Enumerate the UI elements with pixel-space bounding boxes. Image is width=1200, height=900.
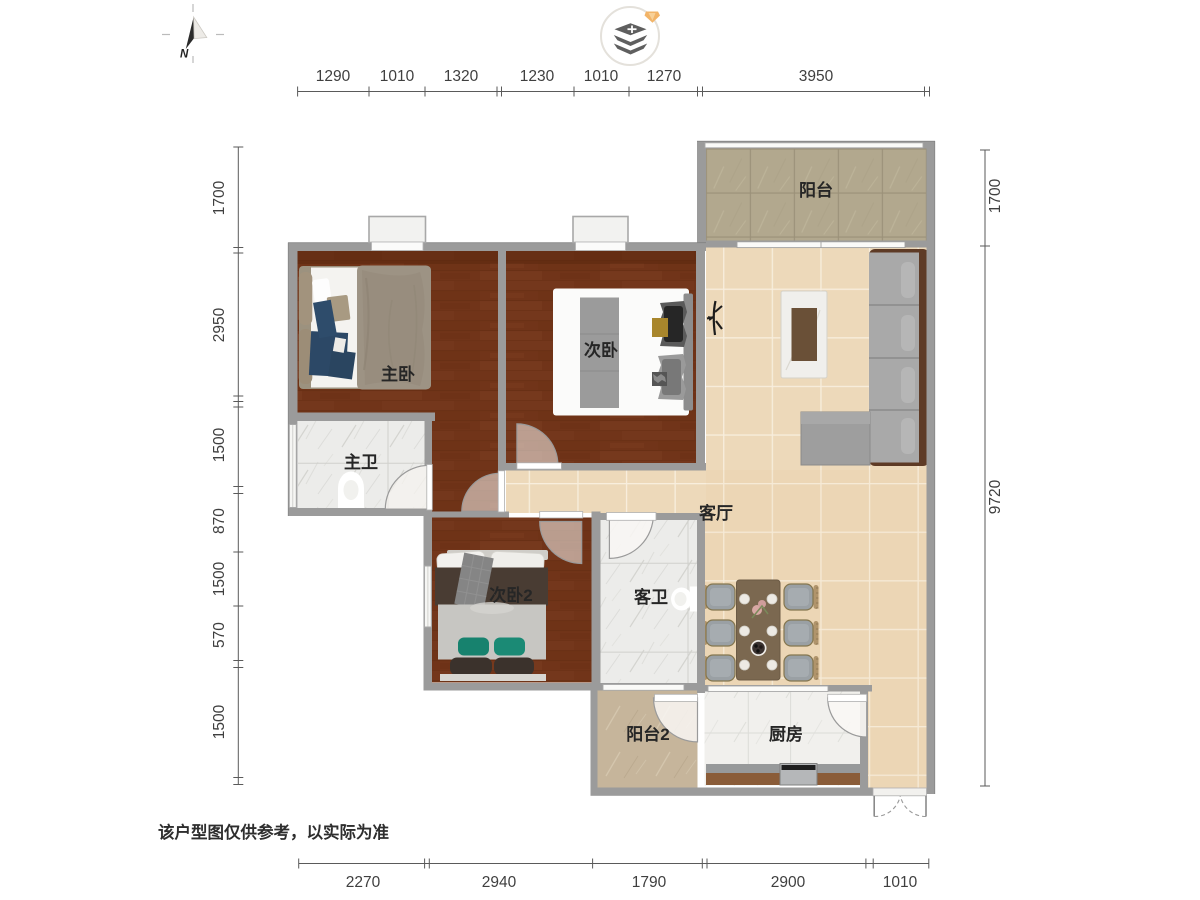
svg-text:1270: 1270 (647, 68, 682, 85)
svg-text:570: 570 (211, 622, 228, 648)
svg-text:1700: 1700 (987, 178, 1004, 213)
svg-text:1320: 1320 (444, 68, 479, 85)
svg-text:次卧: 次卧 (584, 340, 618, 360)
svg-text:阳台2: 阳台2 (626, 724, 669, 744)
svg-text:1010: 1010 (584, 68, 619, 85)
svg-text:9720: 9720 (987, 479, 1004, 514)
svg-text:1010: 1010 (380, 68, 415, 85)
svg-text:3950: 3950 (799, 68, 834, 85)
svg-text:1500: 1500 (211, 427, 228, 462)
svg-text:主卧: 主卧 (381, 364, 415, 384)
svg-text:阳台: 阳台 (799, 180, 833, 200)
svg-text:1010: 1010 (883, 874, 918, 891)
svg-text:2270: 2270 (346, 874, 381, 891)
svg-text:1790: 1790 (632, 874, 667, 891)
svg-text:次卧2: 次卧2 (489, 585, 532, 605)
svg-text:主卫: 主卫 (344, 452, 378, 472)
svg-text:2940: 2940 (482, 874, 517, 891)
svg-text:1290: 1290 (316, 68, 351, 85)
svg-text:N: N (180, 49, 189, 61)
svg-text:1700: 1700 (211, 180, 228, 215)
svg-text:客厅: 客厅 (698, 503, 733, 523)
svg-text:该户型图仅供参考，以实际为准: 该户型图仅供参考，以实际为准 (158, 822, 390, 842)
svg-text:2950: 2950 (211, 307, 228, 342)
svg-text:2900: 2900 (771, 874, 806, 891)
svg-text:客卫: 客卫 (633, 587, 668, 607)
svg-text:1500: 1500 (211, 704, 228, 739)
svg-text:1230: 1230 (520, 68, 555, 85)
svg-text:1500: 1500 (211, 561, 228, 596)
svg-text:厨房: 厨房 (769, 724, 803, 744)
svg-text:870: 870 (211, 508, 228, 534)
